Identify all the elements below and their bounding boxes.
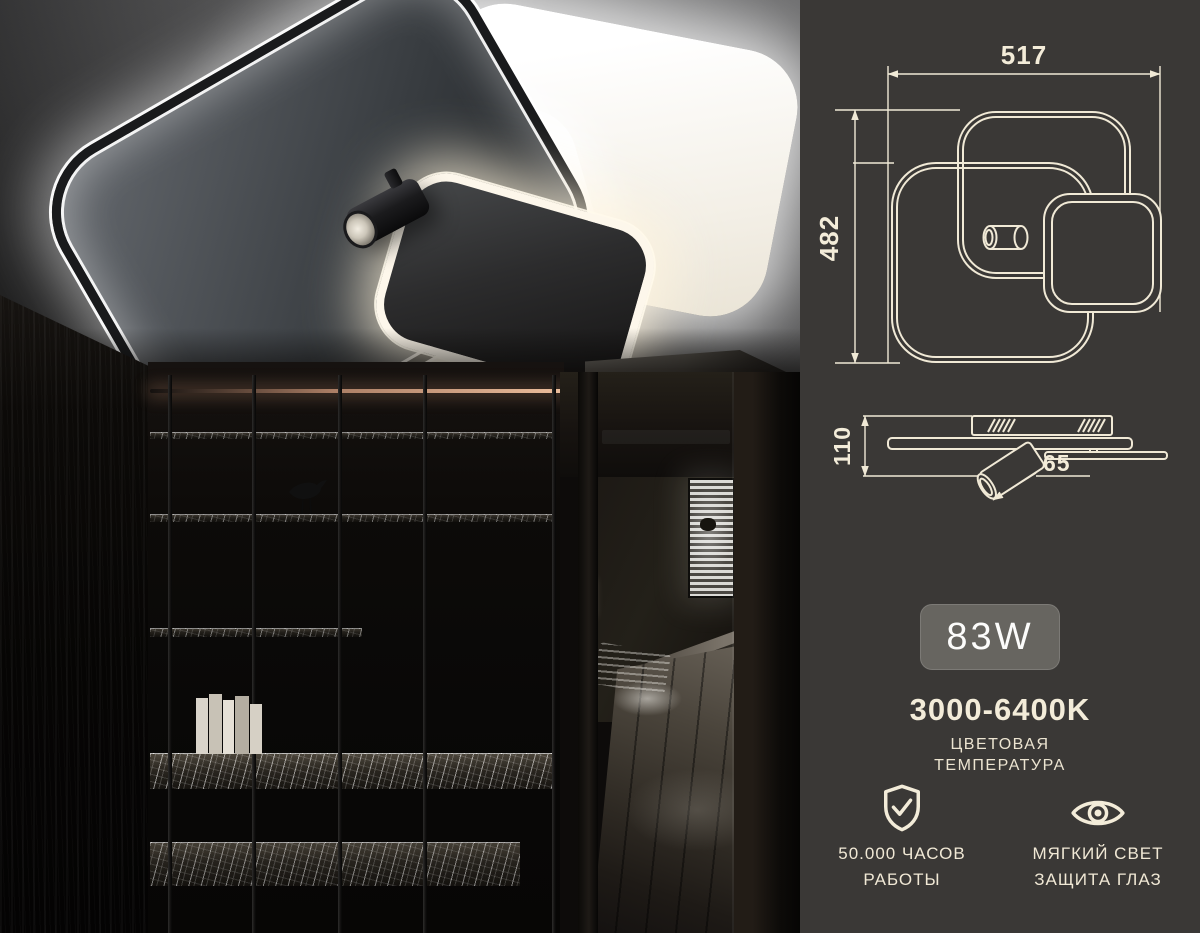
book bbox=[250, 704, 262, 754]
wood-wall bbox=[0, 282, 150, 933]
power-value: 83W bbox=[946, 616, 1033, 659]
side-view-diagram: 110 65 bbox=[800, 398, 1200, 518]
eye-icon bbox=[1014, 780, 1182, 832]
window-blinds bbox=[688, 478, 735, 598]
feature-soft-light: МЯГКИЙ СВЕТ ЗАЩИТА ГЛАЗ bbox=[1014, 780, 1182, 893]
feature-caption-line2: РАБОТЫ bbox=[818, 867, 986, 893]
feature-caption-line1: 50.000 ЧАСОВ bbox=[818, 841, 986, 867]
book bbox=[223, 700, 234, 754]
shelf-post bbox=[338, 375, 342, 933]
spec-panel: 517 482 bbox=[800, 0, 1200, 933]
color-temperature-caption-line1: ЦВЕТОВАЯ bbox=[800, 734, 1200, 755]
shelf bbox=[150, 842, 520, 886]
dimension-height-label: 482 bbox=[814, 215, 844, 261]
feature-caption-line2: ЗАЩИТА ГЛАЗ bbox=[1014, 867, 1182, 893]
door-frame bbox=[578, 372, 598, 933]
feature-lifespan: 50.000 ЧАСОВ РАБОТЫ bbox=[818, 780, 986, 893]
color-temperature-value: 3000-6400K bbox=[800, 692, 1200, 728]
corridor bbox=[560, 372, 800, 933]
book bbox=[235, 696, 249, 754]
books bbox=[196, 694, 272, 754]
shelf bbox=[150, 432, 554, 439]
power-badge: 83W bbox=[920, 604, 1060, 670]
features-row: 50.000 ЧАСОВ РАБОТЫ МЯГКИЙ СВЕТ ЗАЩИТА Г… bbox=[800, 780, 1200, 893]
color-temperature-caption-line2: ТЕМПЕРАТУРА bbox=[800, 755, 1200, 776]
shelf bbox=[150, 514, 554, 522]
shelf bbox=[150, 753, 554, 789]
ceiling-recess bbox=[602, 430, 730, 444]
dimension-depth-label: 110 bbox=[829, 426, 855, 466]
product-card: 517 482 bbox=[0, 0, 1200, 933]
shelf-post bbox=[168, 375, 172, 933]
dimension-spot-label: 65 bbox=[1043, 450, 1071, 476]
book bbox=[196, 698, 208, 754]
bird-figurine bbox=[283, 468, 331, 518]
shelf-post bbox=[252, 375, 256, 933]
feature-caption-line1: МЯГКИЙ СВЕТ bbox=[1014, 841, 1182, 867]
shelf bbox=[150, 628, 362, 637]
color-temperature-caption: ЦВЕТОВАЯ ТЕМПЕРАТУРА bbox=[800, 734, 1200, 776]
corridor-right-wall bbox=[732, 372, 800, 933]
product-photo bbox=[0, 0, 800, 933]
top-view-diagram: 517 482 bbox=[800, 30, 1200, 385]
shelf-post bbox=[423, 375, 427, 933]
dimension-width-label: 517 bbox=[1001, 40, 1047, 70]
shield-check-icon bbox=[818, 780, 986, 832]
shelf-post bbox=[552, 375, 556, 933]
book bbox=[209, 694, 222, 754]
